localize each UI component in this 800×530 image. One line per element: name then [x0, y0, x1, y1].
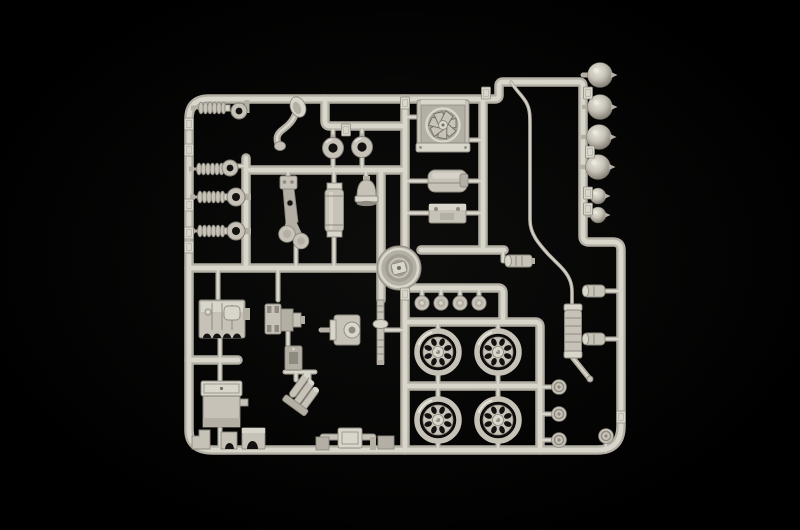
photo-vignette — [0, 0, 800, 530]
sprue-photo-stage — [0, 0, 800, 530]
model-kit-sprue — [0, 0, 800, 530]
